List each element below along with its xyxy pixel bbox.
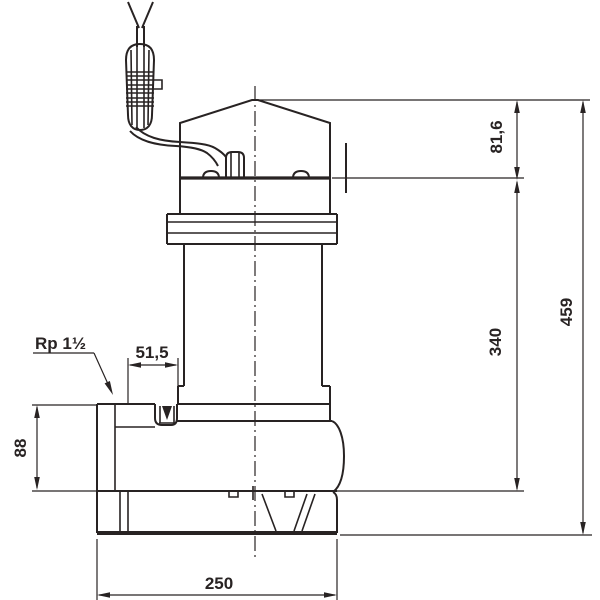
- strainer-base: [97, 404, 337, 533]
- dim-port-offset-label: 51,5: [135, 343, 168, 362]
- port-thread-callout: Rp 1½: [33, 334, 113, 395]
- dim-base-width: 250: [97, 539, 337, 600]
- dim-motor-height: 340: [337, 180, 524, 491]
- dim-total-height-label: 459: [557, 298, 576, 326]
- dim-top-height: 81,6: [332, 100, 524, 180]
- motor-cap: [180, 100, 346, 214]
- dim-port-height: 88: [11, 405, 97, 491]
- dim-port-height-label: 88: [11, 439, 30, 458]
- hydraulic-housing: [97, 404, 344, 492]
- dim-port-offset: 51,5: [128, 343, 178, 404]
- dim-total-height: 459: [258, 100, 592, 535]
- drawing-canvas: 459 81,6 340 88 51,5 250: [0, 0, 600, 600]
- cable-coil: [126, 44, 162, 130]
- port-thread-label: Rp 1½: [35, 334, 86, 353]
- pump-dimension-drawing: 459 81,6 340 88 51,5 250: [0, 0, 600, 600]
- power-cable: [128, 2, 153, 47]
- motor-body: [178, 244, 330, 404]
- dim-base-width-label: 250: [205, 574, 233, 593]
- cable-to-gland: [130, 127, 226, 166]
- dim-top-height-label: 81,6: [487, 120, 506, 153]
- clamp-collar: [167, 214, 337, 244]
- dim-motor-height-label: 340: [486, 328, 505, 356]
- cable-gland: [226, 152, 244, 178]
